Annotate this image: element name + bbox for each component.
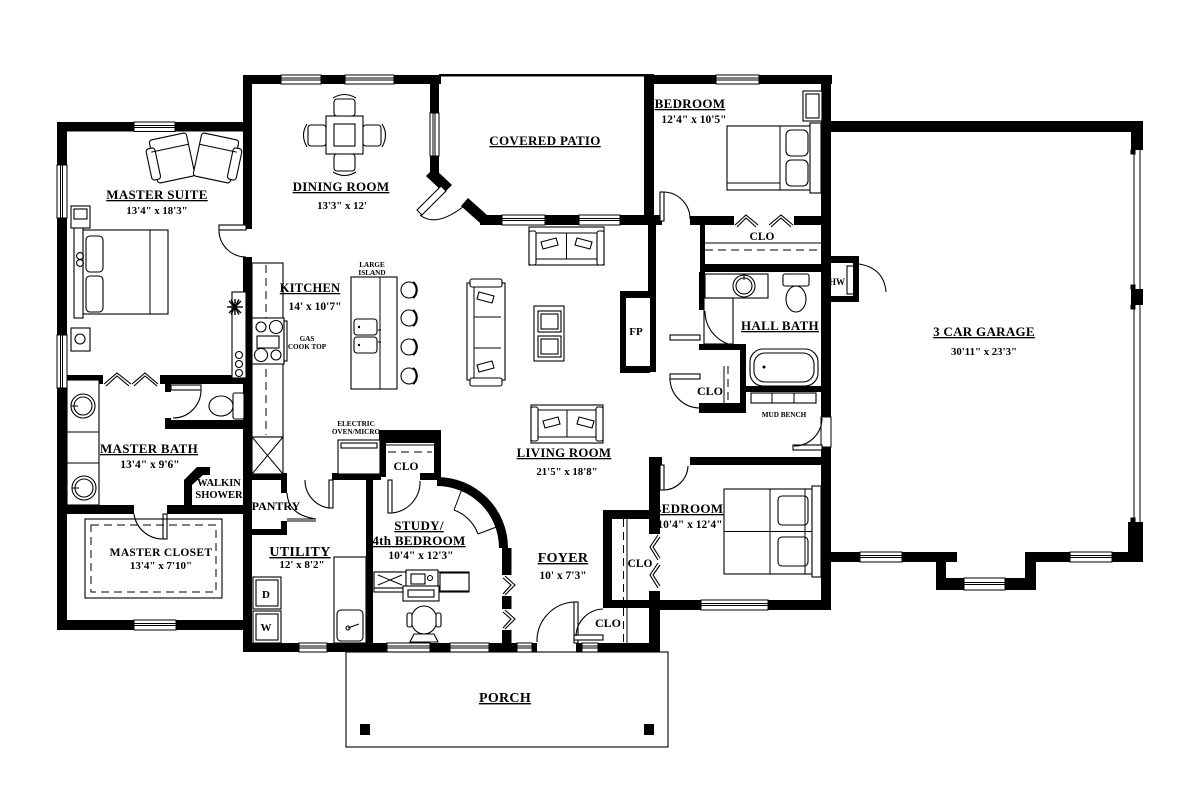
svg-text:MASTER SUITE: MASTER SUITE bbox=[106, 187, 208, 202]
svg-text:WALKIN: WALKIN bbox=[197, 478, 241, 489]
svg-text:ISLAND: ISLAND bbox=[358, 269, 385, 277]
svg-text:W: W bbox=[261, 622, 272, 634]
svg-text:LIVING ROOM: LIVING ROOM bbox=[517, 446, 612, 460]
svg-text:BEDROOM: BEDROOM bbox=[655, 96, 726, 111]
svg-text:BEDROOM: BEDROOM bbox=[653, 501, 724, 516]
svg-text:CLO: CLO bbox=[697, 384, 723, 398]
svg-text:CLO: CLO bbox=[750, 231, 775, 243]
svg-text:HW: HW bbox=[829, 277, 845, 287]
svg-text:PORCH: PORCH bbox=[479, 691, 531, 706]
svg-text:21'5" x 18'8": 21'5" x 18'8" bbox=[536, 466, 597, 478]
svg-text:CLO: CLO bbox=[394, 461, 419, 473]
svg-text:12' x 8'2": 12' x 8'2" bbox=[279, 559, 324, 571]
svg-text:DINING ROOM: DINING ROOM bbox=[293, 179, 390, 194]
svg-text:12'4" x 10'5": 12'4" x 10'5" bbox=[661, 114, 726, 126]
svg-text:SHOWER: SHOWER bbox=[195, 490, 243, 501]
svg-text:KITCHEN: KITCHEN bbox=[280, 281, 340, 295]
svg-text:UTILITY: UTILITY bbox=[269, 545, 330, 560]
svg-text:PANTRY: PANTRY bbox=[252, 499, 301, 513]
svg-text:13'3" x 12': 13'3" x 12' bbox=[317, 200, 367, 212]
svg-text:STUDY/: STUDY/ bbox=[394, 518, 444, 533]
svg-text:3 CAR GARAGE: 3 CAR GARAGE bbox=[933, 324, 1035, 339]
svg-text:10'4" x 12'4": 10'4" x 12'4" bbox=[657, 519, 722, 531]
svg-text:MASTER BATH: MASTER BATH bbox=[100, 441, 198, 456]
svg-text:13'4" x 9'6": 13'4" x 9'6" bbox=[120, 459, 179, 471]
svg-text:30'11" x 23'3": 30'11" x 23'3" bbox=[951, 346, 1017, 358]
svg-text:D: D bbox=[262, 589, 270, 601]
svg-text:CLO: CLO bbox=[595, 616, 621, 630]
svg-text:ELECTRIC: ELECTRIC bbox=[337, 420, 375, 428]
svg-text:HALL BATH: HALL BATH bbox=[741, 318, 819, 333]
svg-text:13'4" x 18'3": 13'4" x 18'3" bbox=[126, 205, 187, 217]
svg-text:13'4" x 7'10": 13'4" x 7'10" bbox=[130, 560, 192, 572]
svg-text:10' x 7'3": 10' x 7'3" bbox=[539, 570, 586, 582]
svg-text:14' x 10'7": 14' x 10'7" bbox=[288, 301, 341, 313]
svg-text:COOK TOP: COOK TOP bbox=[288, 343, 327, 351]
svg-text:MASTER CLOSET: MASTER CLOSET bbox=[110, 547, 213, 559]
svg-text:LARGE: LARGE bbox=[359, 261, 385, 269]
svg-text:4th BEDROOM: 4th BEDROOM bbox=[372, 533, 465, 548]
svg-text:OVEN/MICRO: OVEN/MICRO bbox=[332, 428, 381, 436]
svg-text:CLO: CLO bbox=[628, 558, 653, 570]
svg-text:MUD BENCH: MUD BENCH bbox=[762, 411, 807, 419]
svg-text:FOYER: FOYER bbox=[538, 551, 589, 566]
svg-text:GAS: GAS bbox=[300, 335, 315, 343]
svg-text:10'4" x 12'3": 10'4" x 12'3" bbox=[388, 550, 453, 562]
svg-text:COVERED PATIO: COVERED PATIO bbox=[489, 133, 600, 148]
svg-text:FP: FP bbox=[629, 326, 643, 338]
